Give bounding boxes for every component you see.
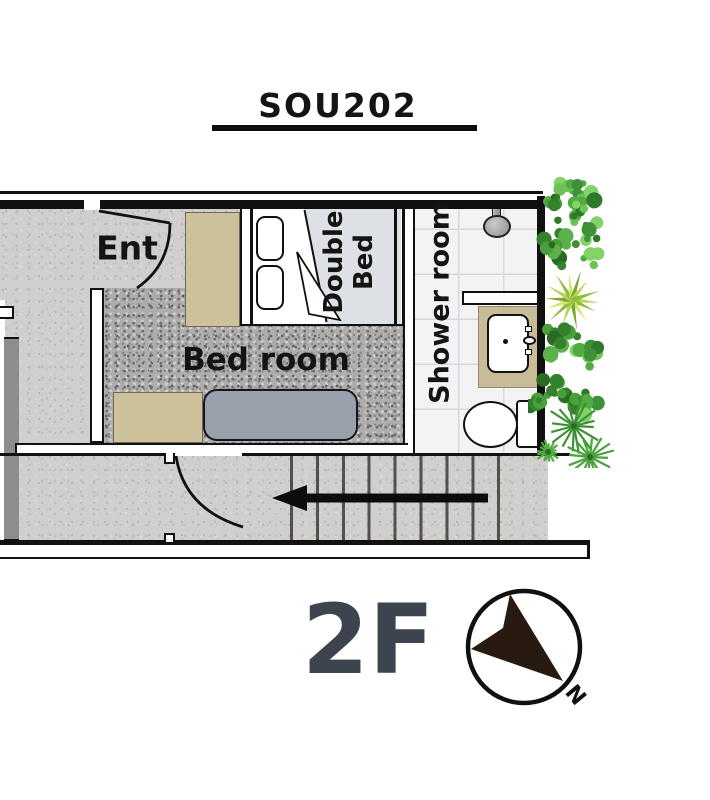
wall-top [0, 200, 543, 209]
side-table [113, 392, 203, 443]
wardrobe [185, 212, 240, 327]
unit-title: SOU202 [258, 86, 418, 125]
sofa [203, 389, 358, 441]
pillow [256, 265, 284, 310]
faucet-handle [525, 349, 532, 355]
shower-head-icon [483, 215, 511, 238]
title-underline [212, 125, 477, 131]
faucet-icon [523, 336, 536, 345]
compass: N [462, 585, 586, 709]
pillow [256, 216, 284, 261]
drain-dot [503, 339, 508, 344]
outer-line-top [0, 191, 543, 194]
door-jamb-stub [164, 533, 175, 542]
left-wall-stub [0, 306, 14, 319]
bed-footboard [394, 209, 397, 324]
bed-headboard [250, 209, 253, 324]
floorplan-canvas: SOU202 [0, 0, 710, 800]
toilet-bowl [463, 401, 518, 448]
entrance-label: Ent [96, 229, 158, 268]
corridor-wall-line [0, 453, 570, 456]
wall-bedroom-shower [403, 207, 415, 455]
entry-door-opening [84, 198, 100, 210]
door-jamb-stub [164, 453, 175, 464]
wall-bottom-band [0, 540, 590, 559]
bedroom-label: Bed room [182, 342, 350, 378]
staircase [290, 455, 501, 540]
shower-room-label: Shower room [425, 202, 456, 404]
corridor-door-opening [175, 453, 242, 456]
floor-number-label: 2F [302, 592, 434, 688]
sink [487, 314, 529, 373]
wall-right [537, 196, 545, 455]
wall-entry-bedroom [90, 288, 104, 443]
faucet-handle [525, 326, 532, 332]
shower-partition-wall [462, 291, 539, 305]
double-bed-label: Double Bed [320, 204, 380, 320]
left-counter [4, 337, 19, 541]
wall-bedroom-corridor [15, 443, 408, 453]
